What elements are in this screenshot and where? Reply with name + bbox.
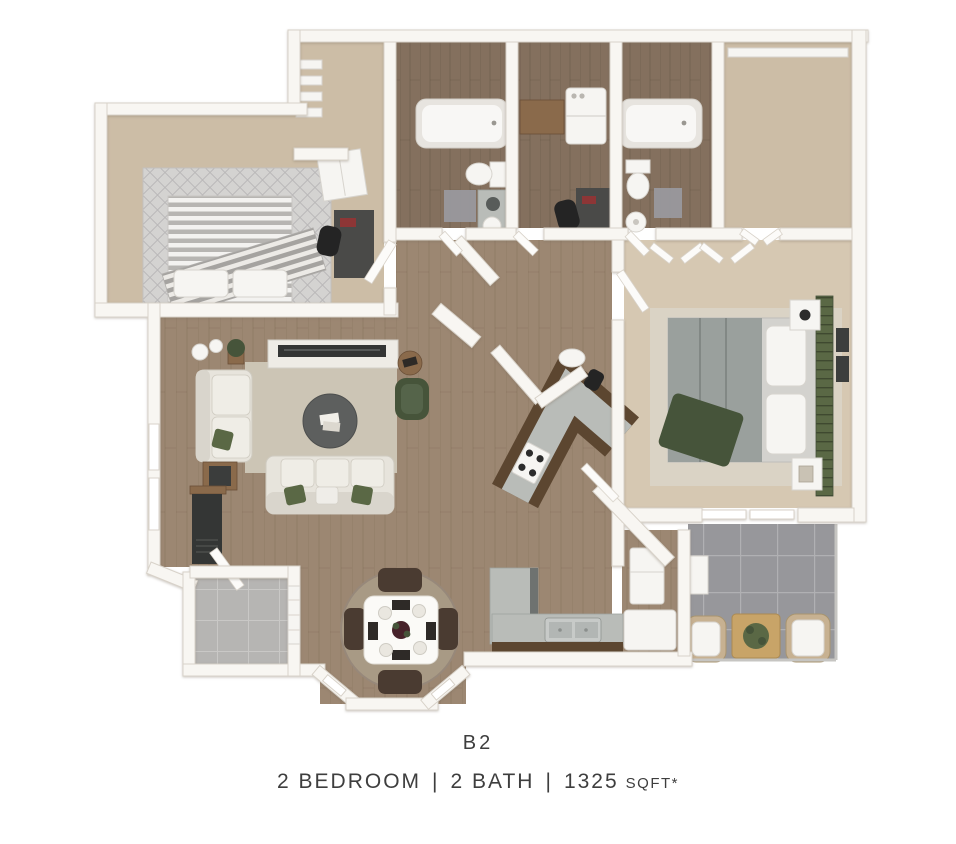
potted-plant xyxy=(227,339,245,357)
loveseat-cushion xyxy=(212,375,250,415)
wall xyxy=(384,42,396,242)
table-lamp xyxy=(800,310,811,321)
closet-shelf xyxy=(728,48,848,57)
bedroom-2-wall-bottom xyxy=(798,508,854,522)
entry-wall-bottom xyxy=(183,664,325,676)
bedroom-2 xyxy=(650,296,849,496)
wall-art xyxy=(836,328,849,352)
plate xyxy=(379,607,392,620)
plan-caption: B2 2 BEDROOM|2 BATH|1325SQFT* xyxy=(0,732,956,794)
bathtub-drain xyxy=(492,121,497,126)
centerpiece-leaves xyxy=(404,631,411,638)
spec-area-value: 1325 xyxy=(564,770,619,793)
entry-wall-right xyxy=(288,642,300,676)
decor-sphere xyxy=(192,344,208,360)
placemat xyxy=(392,600,410,610)
bedroom-2-wall-left xyxy=(612,240,624,272)
dishwasher xyxy=(624,610,676,650)
laundry-desk-book xyxy=(582,196,596,204)
hall-wall xyxy=(780,228,852,240)
dining-chair xyxy=(378,568,422,592)
wall xyxy=(506,42,518,228)
bathtub-basin xyxy=(422,105,502,142)
spec-separator: | xyxy=(545,770,552,793)
window xyxy=(149,424,159,470)
bedroom-1-pillow xyxy=(233,270,287,297)
window xyxy=(149,478,159,530)
hall-wall xyxy=(466,228,516,240)
kitchen-wall-bottom xyxy=(464,652,692,666)
entry-wall-right xyxy=(288,566,300,588)
accent-pillow xyxy=(351,484,374,505)
bathtub-drain xyxy=(682,121,687,126)
placemat xyxy=(392,650,410,660)
bedroom-2-pillow xyxy=(766,394,806,454)
spec-bedrooms: 2 BEDROOM xyxy=(277,770,421,793)
entry-wall-top xyxy=(190,566,300,578)
plan-code: B2 xyxy=(0,732,956,755)
spec-area-unit: SQFT* xyxy=(626,775,679,792)
spec-baths: 2 BATH xyxy=(451,770,535,793)
patio-plant-leaves xyxy=(746,626,754,634)
bedroom-1 xyxy=(143,168,331,316)
vanity-sink xyxy=(486,197,500,211)
bedroom-1-pillow xyxy=(174,270,228,297)
exterior-wall-right xyxy=(852,30,866,522)
plate xyxy=(413,605,426,618)
hall-wall xyxy=(396,228,442,240)
loveseat-back xyxy=(196,370,210,462)
dining-chair xyxy=(436,608,458,650)
patio-wall-left xyxy=(678,530,690,656)
closet-wall xyxy=(294,148,348,160)
hall-wall xyxy=(544,228,628,240)
laundry-cabinet xyxy=(520,100,564,134)
bedroom-1-wall-top xyxy=(95,103,307,115)
hall-table xyxy=(559,349,585,367)
sofa-cushion xyxy=(281,459,314,487)
dining-chair xyxy=(378,670,422,694)
patio-chair-cushion xyxy=(692,622,720,656)
washer-dial xyxy=(579,93,584,98)
sofa-cushion xyxy=(316,459,349,487)
wall xyxy=(288,30,300,115)
spec-separator: | xyxy=(432,770,439,793)
wall xyxy=(384,288,396,315)
exterior-wall-left xyxy=(95,103,107,315)
sofa-cushion xyxy=(351,459,384,487)
plate xyxy=(414,642,427,655)
bedroom-2-wall-left xyxy=(612,320,624,566)
side-table-tray xyxy=(209,466,231,486)
sink-drain xyxy=(633,219,639,225)
toilet-bowl xyxy=(627,173,649,199)
wall-art xyxy=(836,356,849,382)
centerpiece-leaves xyxy=(393,623,400,630)
desk-book xyxy=(340,218,356,227)
nightstand-frame xyxy=(799,466,813,482)
patio-chair-cushion xyxy=(792,620,824,656)
patio-slider-pane xyxy=(750,510,794,519)
decor-sphere xyxy=(210,340,223,353)
hall-wall xyxy=(656,228,742,240)
wall xyxy=(712,42,724,228)
placemat xyxy=(426,622,436,640)
entry-wall-left xyxy=(183,572,195,676)
coffee-table-books xyxy=(323,421,341,432)
plate xyxy=(380,644,393,657)
walk-in-closet-floor xyxy=(724,42,852,228)
patio-plant-leaves xyxy=(758,637,766,645)
armchair-cushion xyxy=(401,384,423,414)
floor-plan-page: B2 2 BEDROOM|2 BATH|1325SQFT* xyxy=(0,0,956,844)
bedroom-1-wall-bottom xyxy=(95,303,398,317)
bedroom-2-pillow xyxy=(766,326,806,386)
sink-drain xyxy=(558,628,562,632)
patio-slider-pane xyxy=(702,510,746,519)
placemat xyxy=(368,622,378,640)
fireplace-mantel xyxy=(190,486,226,494)
walk-in-closet xyxy=(728,48,848,57)
bath-mat xyxy=(444,190,476,222)
plan-specs: 2 BEDROOM|2 BATH|1325SQFT* xyxy=(0,770,956,794)
patio-plant xyxy=(743,623,769,649)
floor-plan xyxy=(0,0,956,726)
exterior-wall-top xyxy=(288,30,868,42)
dining-chair xyxy=(344,608,366,650)
wall xyxy=(610,42,622,228)
toilet-bowl xyxy=(466,163,492,185)
sink-drain xyxy=(584,628,588,632)
toilet-tank xyxy=(626,160,650,173)
washer-dial xyxy=(571,93,576,98)
bath-mat xyxy=(654,188,682,218)
sofa-pillow xyxy=(316,487,338,504)
